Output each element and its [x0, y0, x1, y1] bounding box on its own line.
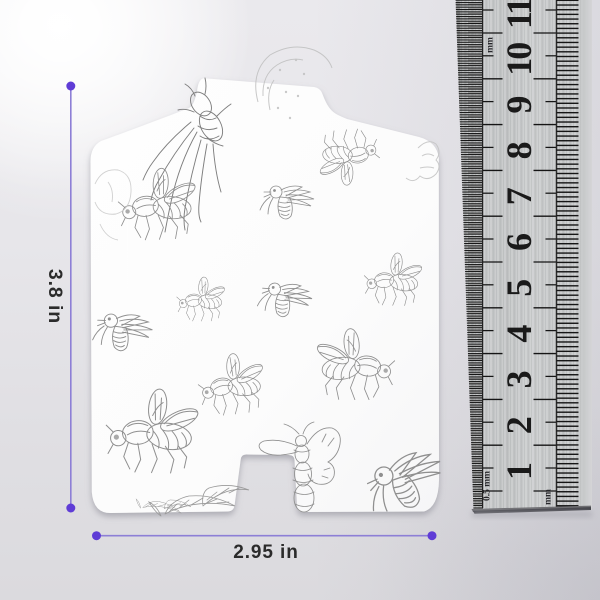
svg-text:9: 9 — [499, 97, 539, 114]
svg-text:7: 7 — [499, 187, 539, 205]
svg-text:5: 5 — [499, 280, 539, 297]
svg-text:1: 1 — [499, 463, 539, 480]
svg-text:8: 8 — [499, 142, 539, 159]
svg-text:11: 11 — [499, 0, 539, 29]
svg-text:4: 4 — [499, 325, 539, 343]
svg-text:2: 2 — [499, 417, 539, 434]
svg-text:mm: mm — [544, 489, 554, 505]
svg-text:3: 3 — [499, 371, 539, 388]
svg-text:0.5 mm: 0.5 mm — [483, 471, 493, 501]
svg-text:10: 10 — [499, 43, 539, 76]
svg-text:6: 6 — [499, 234, 539, 251]
svg-text:mm: mm — [486, 37, 496, 53]
